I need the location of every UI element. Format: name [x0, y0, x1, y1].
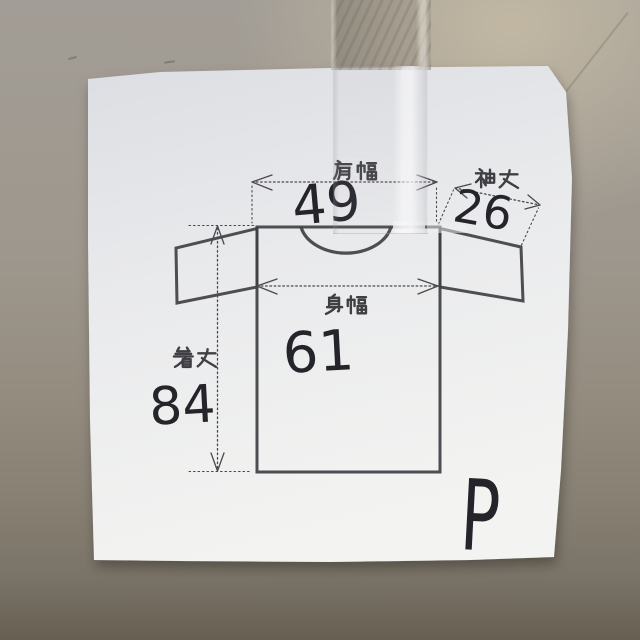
paper-diagram-svg: 肩幅 袖丈 身幅 着丈 49 26 61 84 P	[0, 0, 640, 640]
body-width-value: 61	[281, 318, 356, 387]
garment-length-value: 84	[148, 374, 217, 437]
sleeve-length-value: 26	[450, 178, 517, 241]
tape-over-wall	[331, 0, 431, 70]
garment-length-label: 着丈	[174, 345, 216, 369]
tape-over-paper	[333, 66, 428, 234]
photo-scene: 肩幅 袖丈 身幅 着丈 49 26 61 84 P	[0, 0, 640, 640]
size-mark: P	[458, 458, 503, 574]
body-width-label: 身幅	[324, 292, 366, 316]
